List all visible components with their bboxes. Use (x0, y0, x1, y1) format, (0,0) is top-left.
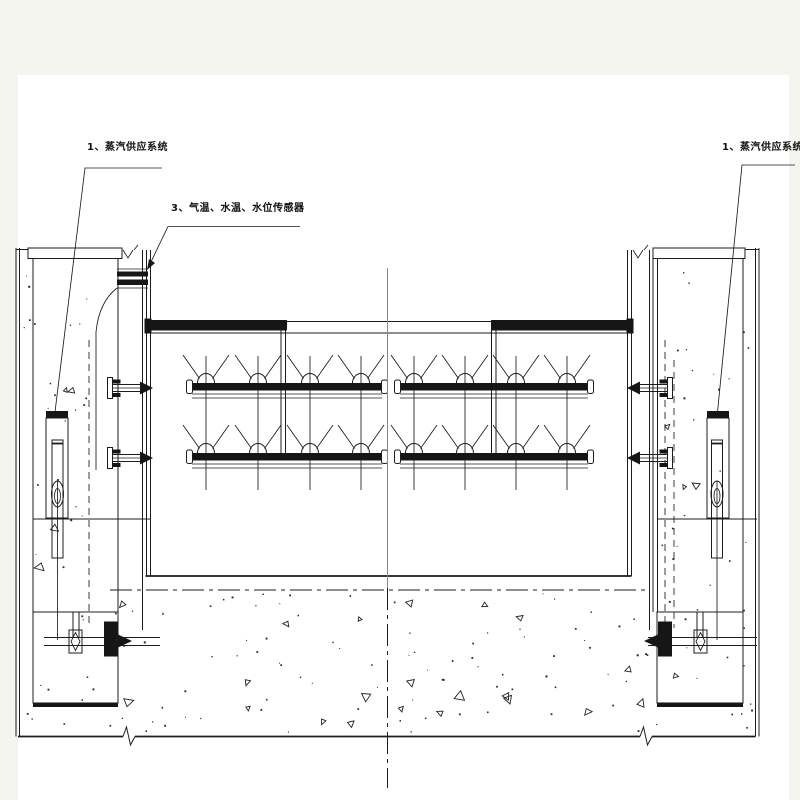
drawing-sheet (18, 75, 789, 800)
label-sensors: 3、气温、水温、水位传感器 (171, 201, 305, 214)
gate-cross-section-drawing: 1、蒸汽供应系统 3、气温、水温、水位传感器 1、蒸汽供应系统 (0, 0, 800, 800)
drawing-canvas: 1、蒸汽供应系统 3、气温、水温、水位传感器 1、蒸汽供应系统 (0, 0, 800, 800)
label-steam-supply-left: 1、蒸汽供应系统 (87, 140, 168, 153)
pipe-fitting-right (658, 622, 672, 657)
label-steam-supply-right: 1、蒸汽供应系统 (722, 140, 800, 153)
